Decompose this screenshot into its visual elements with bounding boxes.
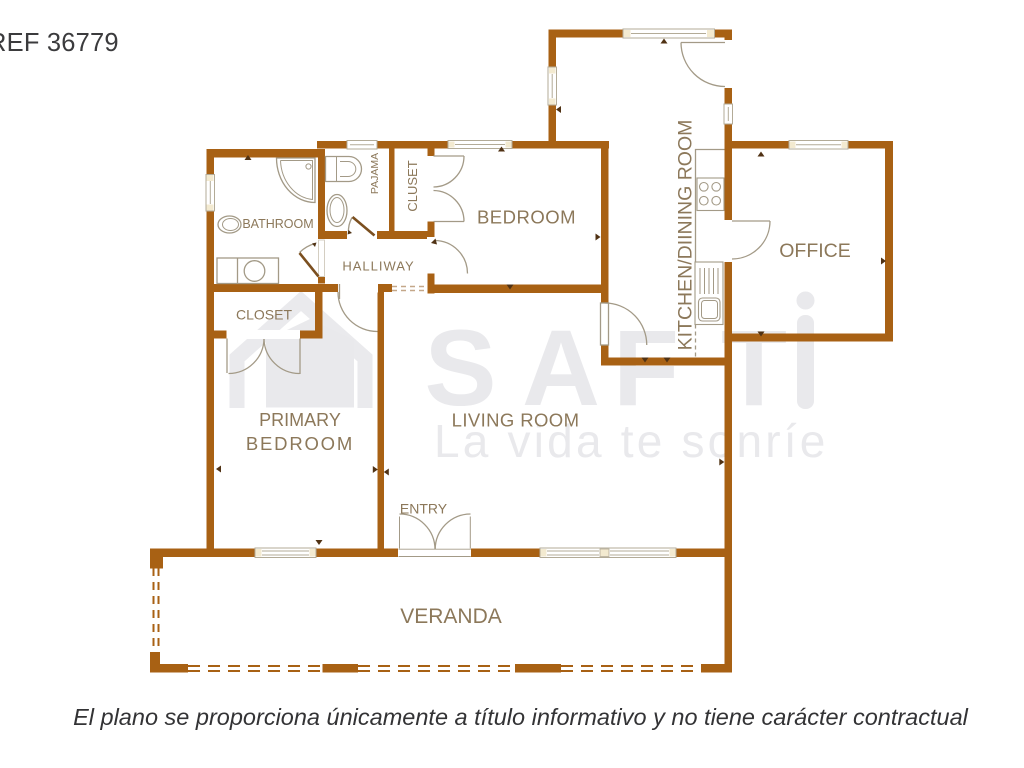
- svg-text:VERANDA: VERANDA: [400, 605, 502, 628]
- svg-text:OFFICE: OFFICE: [779, 240, 851, 262]
- svg-text:BEDROOM: BEDROOM: [246, 433, 354, 454]
- svg-text:CLUSET: CLUSET: [405, 160, 420, 211]
- svg-text:HALLIWAY: HALLIWAY: [342, 259, 414, 274]
- svg-text:LIVING ROOM: LIVING ROOM: [452, 410, 580, 431]
- svg-text:PRIMARY: PRIMARY: [259, 410, 341, 430]
- svg-text:CLOSET: CLOSET: [236, 307, 292, 323]
- svg-text:PAJAMA: PAJAMA: [369, 153, 381, 194]
- svg-text:El plano se proporciona únicam: El plano se proporciona únicamente a tít…: [73, 704, 969, 730]
- svg-text:BATHROOM: BATHROOM: [242, 217, 313, 231]
- svg-text:ENTRY: ENTRY: [400, 501, 448, 517]
- svg-text:F: F: [613, 307, 679, 428]
- svg-text:KITCHEN/DIINING ROOM: KITCHEN/DIINING ROOM: [675, 120, 697, 351]
- svg-text:BEDROOM: BEDROOM: [477, 207, 576, 228]
- svg-text:REF 36779: REF 36779: [0, 29, 119, 57]
